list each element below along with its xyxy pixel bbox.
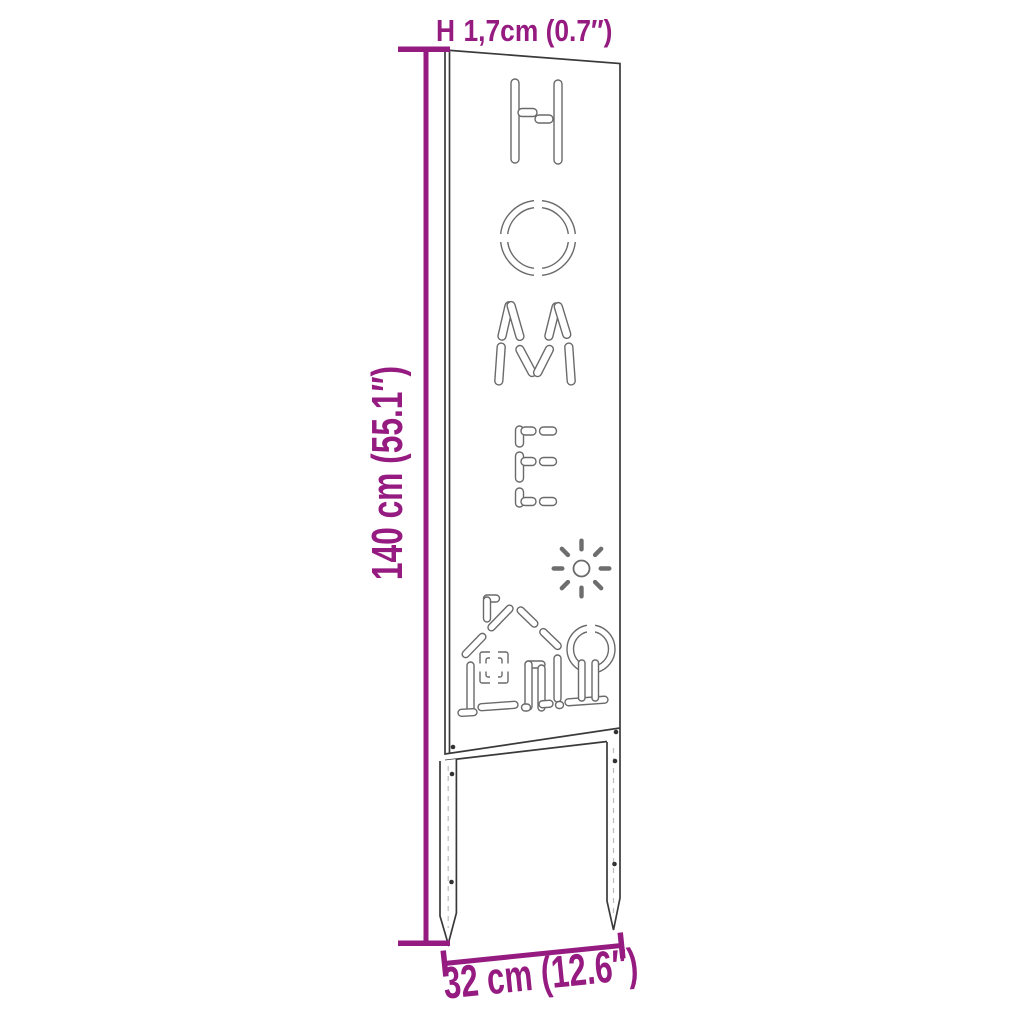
ground-stakes (440, 729, 620, 945)
diagram-artwork (0, 0, 1024, 1024)
diagram-canvas: H1,7cm (0.7″) 140 cm (55.1″) 32 cm (12.6… (0, 0, 1024, 1024)
thickness-value: 1,7cm (0.7″) (464, 13, 613, 48)
sun-icon (552, 539, 612, 599)
mounting-holes (449, 730, 618, 885)
height-value: 140 cm (55.1″) (366, 366, 410, 580)
stake-fold-lines (448, 748, 613, 928)
thickness-marker-icon: H (436, 13, 455, 48)
height-dimension-label: 140 cm (55.1″) (366, 324, 410, 621)
thickness-dimension-label: H1,7cm (0.7″) (436, 15, 644, 46)
